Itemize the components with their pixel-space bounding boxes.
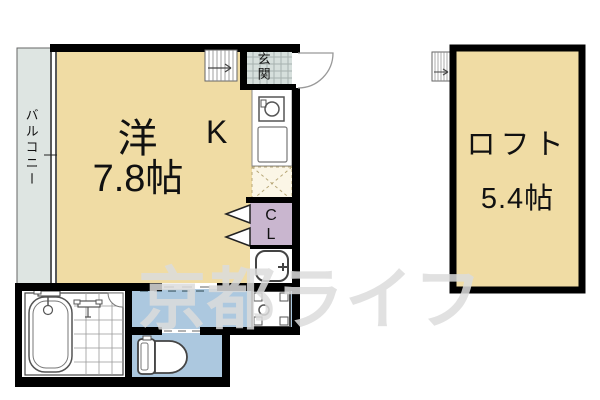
agency-watermark: 京都ライフ: [138, 244, 483, 343]
entrance-label: 玄関: [256, 52, 270, 82]
kitchen-label: K: [206, 116, 227, 150]
main-room-name: 洋: [48, 118, 228, 160]
closet-label: C L: [250, 206, 292, 244]
loft-ladder-icon: [205, 50, 237, 81]
main-room-size: 7.8帖: [48, 160, 228, 200]
entrance-door-arc: [298, 53, 333, 88]
floorplan-image: 洋 7.8帖 K 玄関 C L バルコニー ロフト 5.4帖 京都ライフ: [0, 0, 600, 400]
loft-ladder-icon-2: [432, 52, 451, 81]
balcony-label: バルコニー: [24, 108, 38, 188]
loft-size-label: 5.4帖: [450, 184, 585, 214]
main-room-label: 洋 7.8帖: [48, 118, 228, 200]
refrigerator-space: [252, 167, 292, 200]
stove-icon: [259, 97, 284, 121]
kitchen-sink-icon: [258, 127, 287, 162]
loft-label: ロフト: [450, 130, 585, 160]
bathtub-icon: [29, 290, 72, 372]
